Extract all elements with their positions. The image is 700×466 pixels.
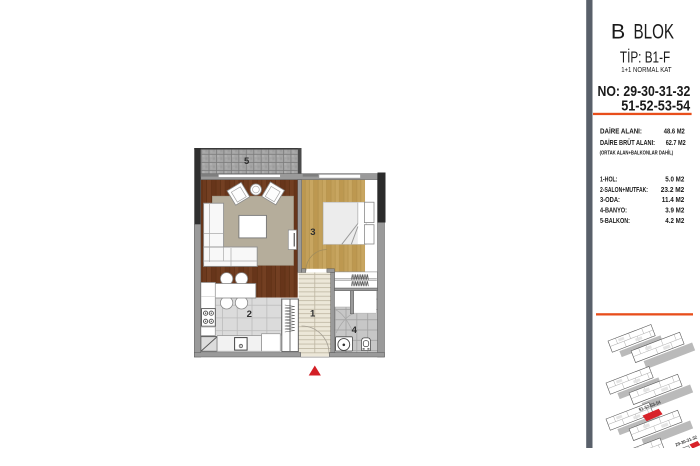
svg-text:11.4 M2: 11.4 M2 [662,195,685,204]
svg-text:B: B [611,20,625,44]
svg-text:DAİRE BRÜT ALANI:: DAİRE BRÜT ALANI: [600,138,655,147]
svg-text:1+1 NORMAL KAT: 1+1 NORMAL KAT [621,65,672,74]
svg-text:62.7 M2: 62.7 M2 [666,138,686,147]
svg-text:1: 1 [310,308,316,319]
svg-text:5: 5 [244,156,250,167]
svg-text:51-52-53-54: 51-52-53-54 [621,98,691,115]
svg-text:4.2 M2: 4.2 M2 [665,216,684,225]
svg-text:5.0 M2: 5.0 M2 [665,175,684,184]
svg-text:1-HOL:: 1-HOL: [600,175,618,184]
svg-text:2: 2 [247,309,252,320]
svg-text:DAİRE ALANI:: DAİRE ALANI: [600,127,642,136]
svg-text:4-BANYO:: 4-BANYO: [600,206,627,215]
svg-text:3: 3 [310,227,315,238]
svg-text:23.2 M2: 23.2 M2 [661,185,685,194]
svg-text:TİP: B1-F: TİP: B1-F [620,48,671,67]
svg-text:4: 4 [352,325,358,336]
svg-text:3-ODA:: 3-ODA: [600,195,620,204]
svg-text:2-SALON+MUTFAK:: 2-SALON+MUTFAK: [600,185,648,194]
svg-text:5-BALKON:: 5-BALKON: [600,216,630,225]
svg-text:BLOK: BLOK [634,20,675,44]
svg-text:48.6 M2: 48.6 M2 [664,127,685,136]
svg-text:(ORTAK ALAN+BALKONLAR DAHİL): (ORTAK ALAN+BALKONLAR DAHİL) [600,150,674,157]
svg-text:3.9 M2: 3.9 M2 [665,206,684,215]
